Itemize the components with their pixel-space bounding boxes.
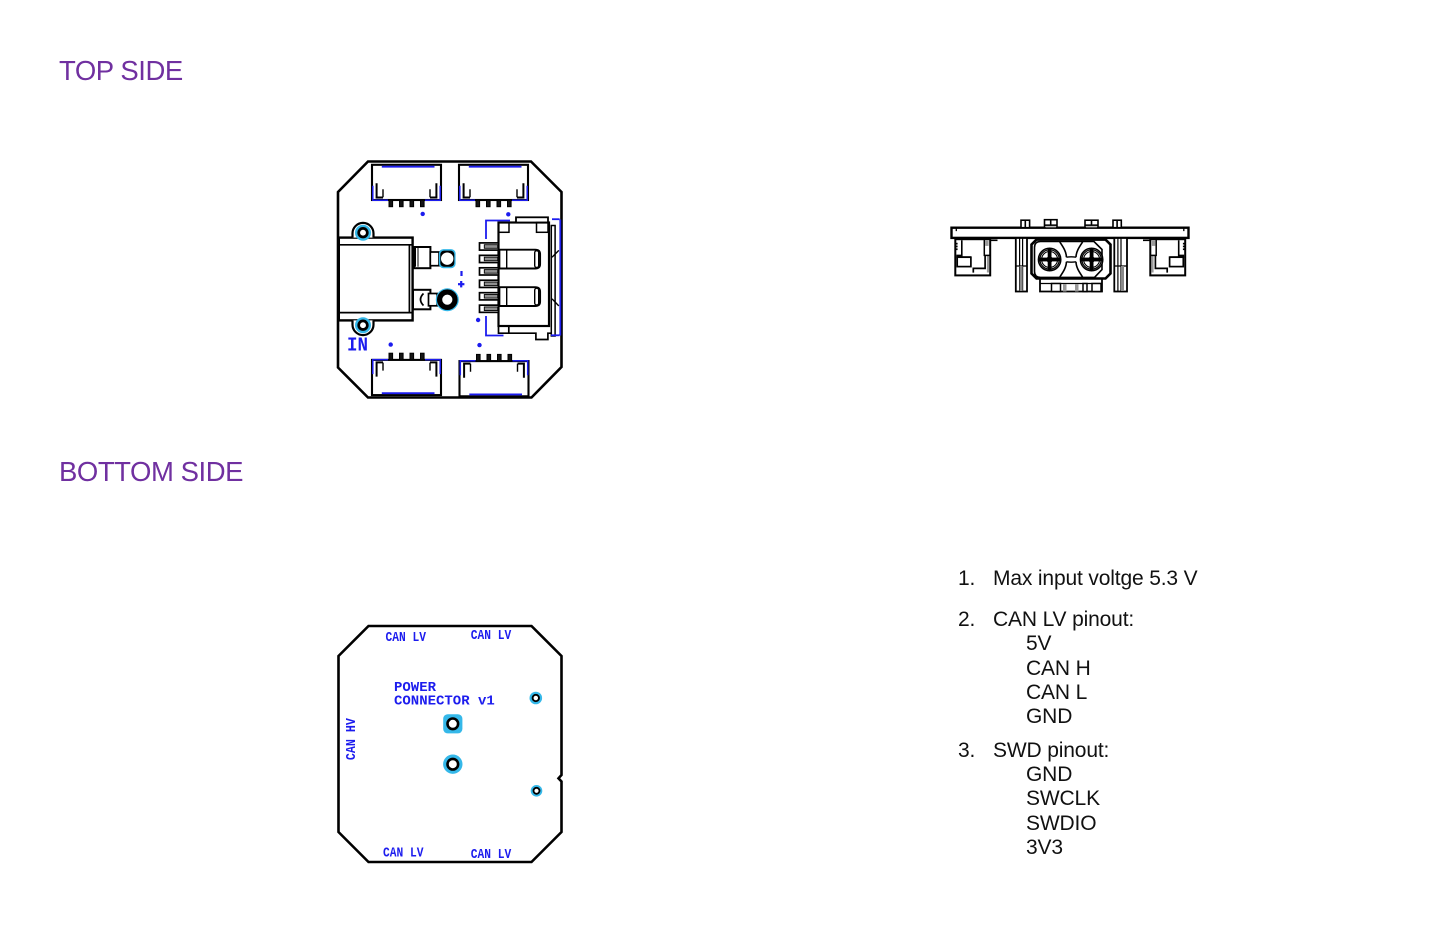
- svg-text:CAN LV: CAN LV: [471, 848, 512, 863]
- svg-text:CAN LV: CAN LV: [471, 629, 512, 644]
- svg-text:CAN HV: CAN HV: [345, 717, 360, 760]
- svg-text:CAN LV: CAN LV: [386, 631, 427, 646]
- svg-text:CONNECTOR v1: CONNECTOR v1: [394, 694, 495, 710]
- svg-text:IN: IN: [347, 335, 368, 357]
- svg-text:CAN LV: CAN LV: [383, 847, 424, 862]
